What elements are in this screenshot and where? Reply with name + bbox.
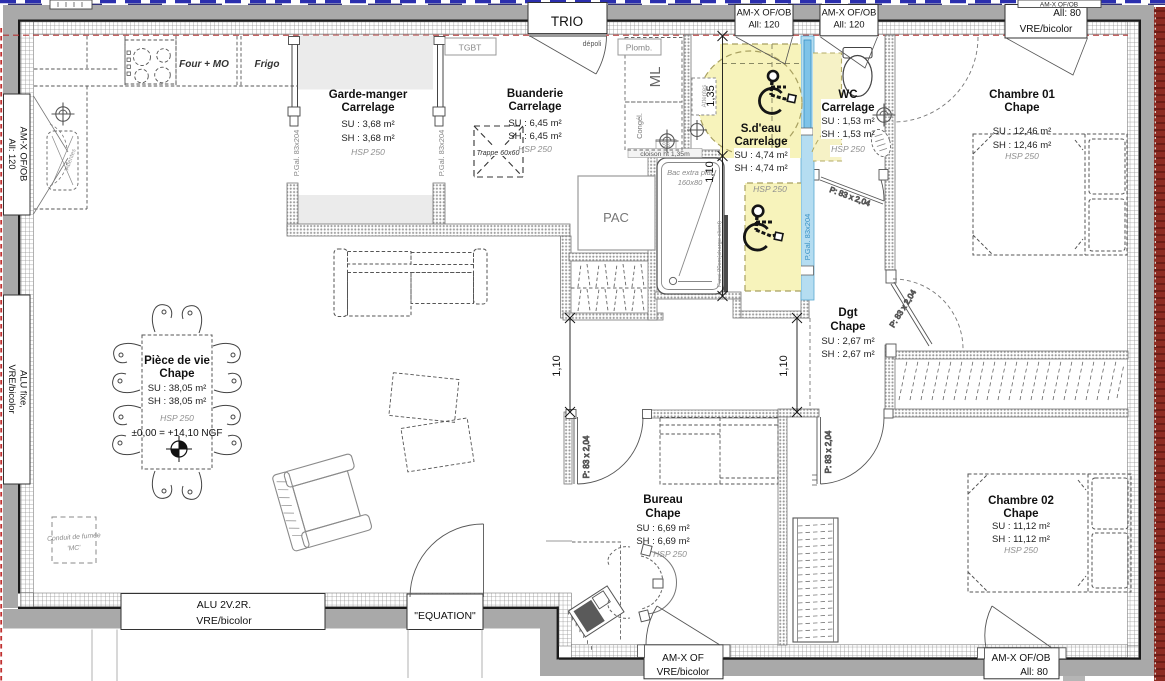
svg-text:S.d'eau: S.d'eau bbox=[741, 123, 781, 135]
svg-text:ALU fixe,: ALU fixe, bbox=[19, 370, 29, 408]
svg-text:ALU 2V.2R.: ALU 2V.2R. bbox=[197, 599, 251, 611]
svg-text:AM-X OF: AM-X OF bbox=[662, 653, 704, 664]
svg-text:±0,00 = +14,10 NGF: ±0,00 = +14,10 NGF bbox=[131, 428, 222, 439]
svg-text:SH : 6,69 m²: SH : 6,69 m² bbox=[636, 536, 689, 547]
svg-text:TGBT: TGBT bbox=[459, 43, 482, 53]
svg-text:SU : 1,53 m²: SU : 1,53 m² bbox=[821, 116, 874, 127]
svg-text:Chambre 01: Chambre 01 bbox=[989, 89, 1055, 101]
svg-text:Carrelage: Carrelage bbox=[508, 101, 561, 113]
svg-text:SH : 1,53 m²: SH : 1,53 m² bbox=[821, 129, 874, 140]
svg-text:SU : 11,12 m²: SU : 11,12 m² bbox=[992, 521, 1050, 532]
svg-text:cloison ht 1,35m: cloison ht 1,35m bbox=[640, 151, 690, 158]
svg-text:TRIO: TRIO bbox=[551, 14, 583, 29]
svg-text:All: 80: All: 80 bbox=[1020, 667, 1048, 678]
svg-text:Trappe 60x60: Trappe 60x60 bbox=[477, 150, 520, 157]
svg-text:Chape: Chape bbox=[159, 368, 194, 380]
svg-text:VRE/bicolor: VRE/bicolor bbox=[196, 615, 252, 627]
svg-text:Frigo: Frigo bbox=[255, 59, 280, 70]
svg-text:Dgt: Dgt bbox=[838, 307, 857, 319]
svg-text:1,10: 1,10 bbox=[551, 355, 563, 376]
svg-text:SH : 6,45 m²: SH : 6,45 m² bbox=[508, 131, 561, 142]
svg-text:SU : 2,67 m²: SU : 2,67 m² bbox=[821, 336, 874, 347]
svg-text:VRE/bicolor: VRE/bicolor bbox=[1020, 24, 1073, 35]
svg-text:AM-X OF/OB: AM-X OF/OB bbox=[737, 8, 792, 18]
svg-text:HSP 250: HSP 250 bbox=[753, 184, 787, 194]
svg-text:Plomb.: Plomb. bbox=[626, 43, 652, 53]
svg-text:Chape: Chape bbox=[1003, 508, 1038, 520]
svg-text:ML: ML bbox=[647, 67, 664, 88]
svg-text:Chape: Chape bbox=[830, 321, 865, 333]
svg-text:SH : 3,68 m²: SH : 3,68 m² bbox=[341, 133, 394, 144]
svg-text:Pièce de vie: Pièce de vie bbox=[144, 355, 210, 367]
svg-text:Carrelage: Carrelage bbox=[341, 102, 394, 114]
svg-text:SU : 38,05 m²: SU : 38,05 m² bbox=[148, 383, 207, 394]
svg-text:1,10: 1,10 bbox=[704, 161, 716, 182]
svg-text:AM-X OF/OB: AM-X OF/OB bbox=[1040, 2, 1078, 9]
svg-text:P.Gal. 83x204: P.Gal. 83x204 bbox=[803, 214, 812, 261]
svg-text:Four + MO: Four + MO bbox=[179, 59, 229, 70]
svg-text:SH : 11,12 m²: SH : 11,12 m² bbox=[992, 534, 1050, 545]
svg-text:All: 120: All: 120 bbox=[7, 138, 17, 169]
svg-text:1,35: 1,35 bbox=[705, 85, 717, 106]
svg-text:160x80: 160x80 bbox=[678, 178, 703, 187]
svg-text:WC: WC bbox=[838, 89, 857, 101]
svg-text:SU : 6,45 m²: SU : 6,45 m² bbox=[508, 118, 561, 129]
svg-text:HSP 250: HSP 250 bbox=[351, 147, 385, 157]
svg-text:SU : 6,69 m²: SU : 6,69 m² bbox=[636, 523, 689, 534]
svg-text:P: 83 x 2,04: P: 83 x 2,04 bbox=[582, 435, 591, 478]
svg-text:VRE/bicolor: VRE/bicolor bbox=[657, 667, 710, 678]
svg-text:HSP 250: HSP 250 bbox=[1004, 545, 1038, 555]
svg-text:PAC: PAC bbox=[603, 210, 629, 225]
svg-text:VRE/bicolor: VRE/bicolor bbox=[7, 364, 17, 413]
svg-text:SH : 2,67 m²: SH : 2,67 m² bbox=[821, 349, 874, 360]
svg-text:AM-X OF/OB: AM-X OF/OB bbox=[19, 127, 29, 182]
svg-text:SU : 3,68 m²: SU : 3,68 m² bbox=[341, 119, 394, 130]
svg-text:Bureau: Bureau bbox=[643, 494, 683, 506]
svg-text:Garde-manger: Garde-manger bbox=[329, 89, 408, 101]
svg-text:AM-X OF/OB: AM-X OF/OB bbox=[992, 653, 1051, 664]
svg-text:HSP 250: HSP 250 bbox=[518, 144, 552, 154]
svg-text:AM-X OF/OB: AM-X OF/OB bbox=[822, 8, 877, 18]
svg-text:SH : 12,46 m²: SH : 12,46 m² bbox=[993, 140, 1052, 151]
svg-text:Congél.: Congél. bbox=[635, 113, 644, 139]
svg-text:Chambre 02: Chambre 02 bbox=[988, 495, 1054, 507]
svg-text:1,10: 1,10 bbox=[778, 355, 790, 376]
svg-text:SU : 12,46 m²: SU : 12,46 m² bbox=[993, 126, 1052, 137]
svg-text:Chape: Chape bbox=[1004, 102, 1039, 114]
svg-text:HSP 250: HSP 250 bbox=[160, 413, 194, 423]
svg-text:All: 80: All: 80 bbox=[1053, 8, 1081, 19]
svg-text:HSP 250: HSP 250 bbox=[653, 549, 687, 559]
svg-text:HSP 250: HSP 250 bbox=[831, 144, 865, 154]
svg-text:HSP 250: HSP 250 bbox=[1005, 151, 1039, 161]
svg-text:Chape: Chape bbox=[645, 508, 680, 520]
svg-text:P.Gal. 83x204: P.Gal. 83x204 bbox=[437, 130, 446, 177]
svg-text:Buanderie: Buanderie bbox=[507, 88, 563, 100]
svg-text:SH : 4,74 m²: SH : 4,74 m² bbox=[734, 163, 787, 174]
svg-text:'MC': 'MC' bbox=[67, 545, 81, 553]
svg-text:SH : 38,05 m²: SH : 38,05 m² bbox=[148, 396, 207, 407]
svg-text:Carrelage: Carrelage bbox=[734, 136, 787, 148]
svg-text:dépoli: dépoli bbox=[583, 41, 602, 48]
svg-text:All: 120: All: 120 bbox=[748, 20, 779, 30]
svg-text:P.Gal. 83x204: P.Gal. 83x204 bbox=[292, 130, 301, 177]
svg-text:Carrelage: Carrelage bbox=[821, 102, 874, 114]
svg-text:All: 120: All: 120 bbox=[833, 20, 864, 30]
svg-text:SU : 4,74 m²: SU : 4,74 m² bbox=[734, 150, 787, 161]
svg-text:"EQUATION": "EQUATION" bbox=[414, 610, 476, 622]
svg-text:P: 83 x 2,04: P: 83 x 2,04 bbox=[824, 430, 833, 473]
